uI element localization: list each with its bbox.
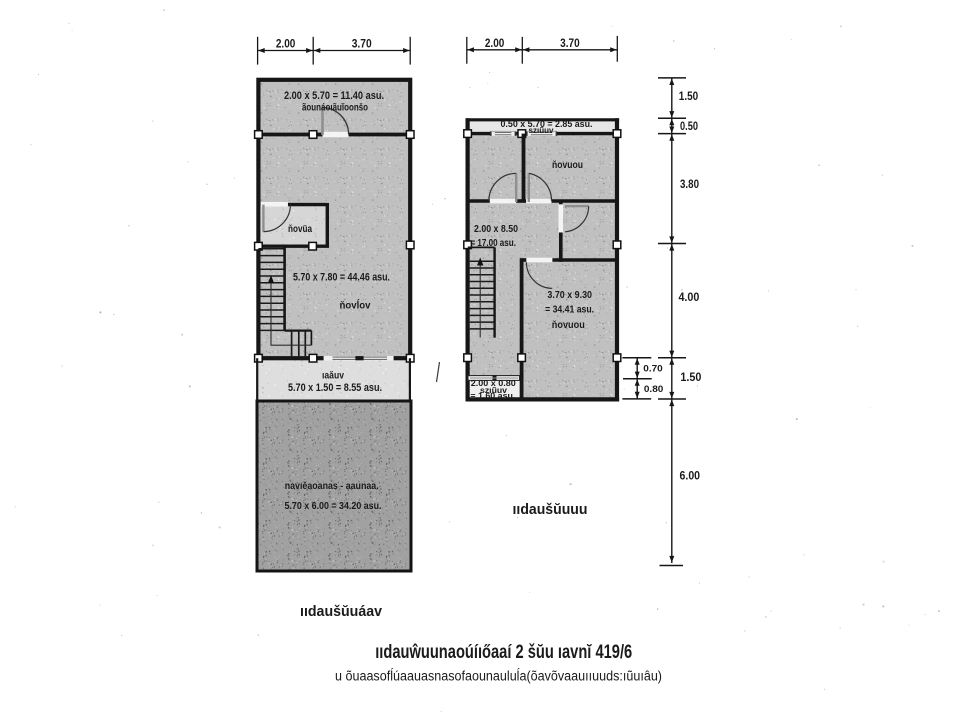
svg-text:ňovüa: ňovüa — [288, 223, 312, 235]
svg-text:5.70 x 6.00 = 34.20 asu.: 5.70 x 6.00 = 34.20 asu. — [285, 501, 382, 512]
svg-text:1.50: 1.50 — [679, 91, 698, 103]
svg-text:ııdauŵuunaoúíıőaaí 2 šŭu ıavnĭ: ııdauŵuunaoúíıőaaí 2 šŭu ıavnĭ 419/6 — [375, 642, 632, 663]
svg-text:2.00: 2.00 — [485, 38, 505, 50]
svg-text:ňovuou: ňovuou — [552, 159, 583, 171]
svg-text:ňovuou: ňovuou — [552, 319, 585, 331]
svg-text:navıěaoanas - aaunaa.: navıěaoanas - aaunaa. — [285, 481, 379, 492]
svg-text:3.70: 3.70 — [352, 38, 372, 50]
svg-text:ňovĺov: ňovĺov — [340, 297, 371, 311]
svg-text:2.00 x 5.70 = 11.40 asu.: 2.00 x 5.70 = 11.40 asu. — [284, 90, 384, 102]
svg-text:= 1.60 asu.: = 1.60 asu. — [470, 392, 515, 401]
svg-text:2.00: 2.00 — [276, 38, 296, 50]
svg-text:3.80: 3.80 — [680, 179, 699, 191]
svg-text:3.70: 3.70 — [560, 38, 580, 50]
svg-text:u õuaasofĺúaauasnasofaounauluĺ: u õuaasofĺúaauasnasofaounauluĺa(õavõvaau… — [335, 669, 662, 684]
svg-text:4.00: 4.00 — [678, 292, 699, 304]
svg-text:ııdaušŭuuu: ııdaušŭuuu — [513, 502, 588, 518]
svg-text:0.80: 0.80 — [644, 384, 664, 395]
svg-text:5.70 x 7.80 = 44.46 asu.: 5.70 x 7.80 = 44.46 asu. — [293, 272, 390, 284]
svg-text:ııdaušŭuáav: ııdaušŭuáav — [300, 604, 382, 620]
svg-text:5.70 x 1.50 = 8.55 asu.: 5.70 x 1.50 = 8.55 asu. — [288, 382, 382, 394]
svg-text:= 34.41 asu.: = 34.41 asu. — [545, 304, 594, 316]
svg-text:6.00: 6.00 — [680, 471, 701, 483]
svg-text:3.70 x 9.30: 3.70 x 9.30 — [547, 289, 592, 301]
svg-text:2.00 x 8.50: 2.00 x 8.50 — [474, 223, 518, 235]
svg-text:ıaăuv: ıaăuv — [322, 369, 344, 381]
svg-text:szıũuv: szıũuv — [529, 126, 555, 135]
svg-text:0.70: 0.70 — [643, 364, 663, 375]
svg-text:0.50: 0.50 — [680, 121, 698, 133]
svg-text:1.50: 1.50 — [680, 372, 701, 384]
svg-text:ãounáoıãuĭoonšo: ãounáoıãuĭoonšo — [302, 103, 368, 114]
svg-text:= 17.00 asu.: = 17.00 asu. — [470, 237, 516, 249]
